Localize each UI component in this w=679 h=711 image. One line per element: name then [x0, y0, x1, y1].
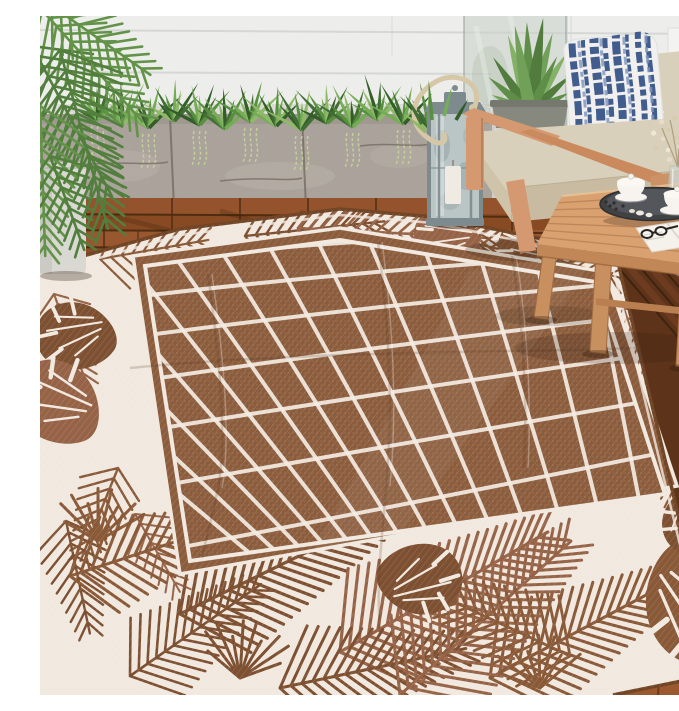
patio-rug-photo — [40, 16, 679, 695]
scene-image — [40, 16, 679, 695]
warm-light-overlay — [40, 16, 679, 695]
